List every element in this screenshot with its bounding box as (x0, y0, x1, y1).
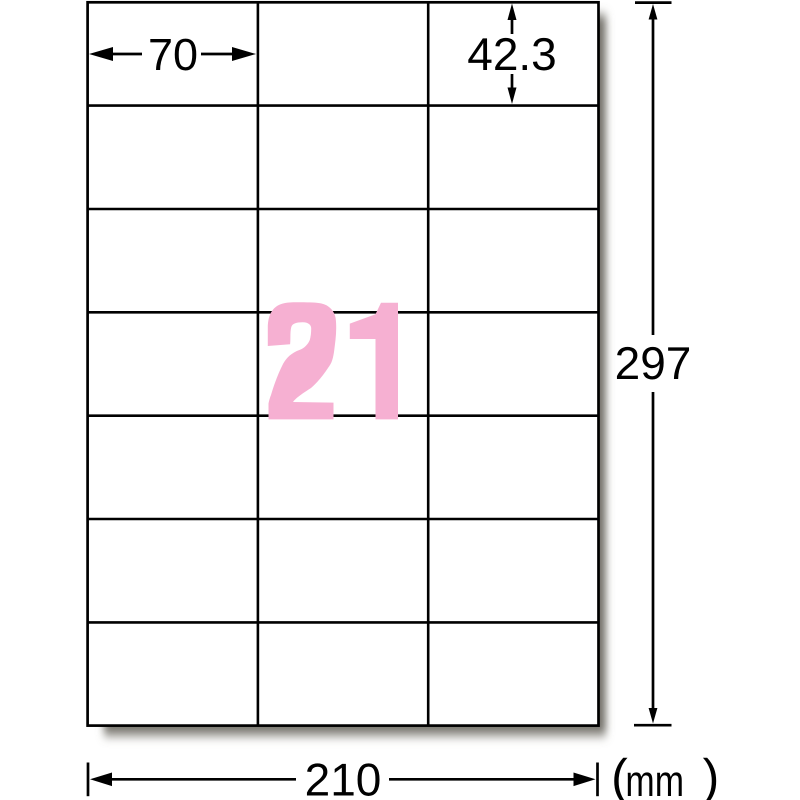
svg-text:42.3: 42.3 (467, 28, 557, 80)
svg-text:70: 70 (148, 29, 198, 80)
svg-text:mm: mm (625, 757, 684, 800)
svg-text:210: 210 (305, 754, 382, 800)
svg-text:): ) (703, 749, 720, 800)
svg-text:297: 297 (615, 337, 692, 389)
